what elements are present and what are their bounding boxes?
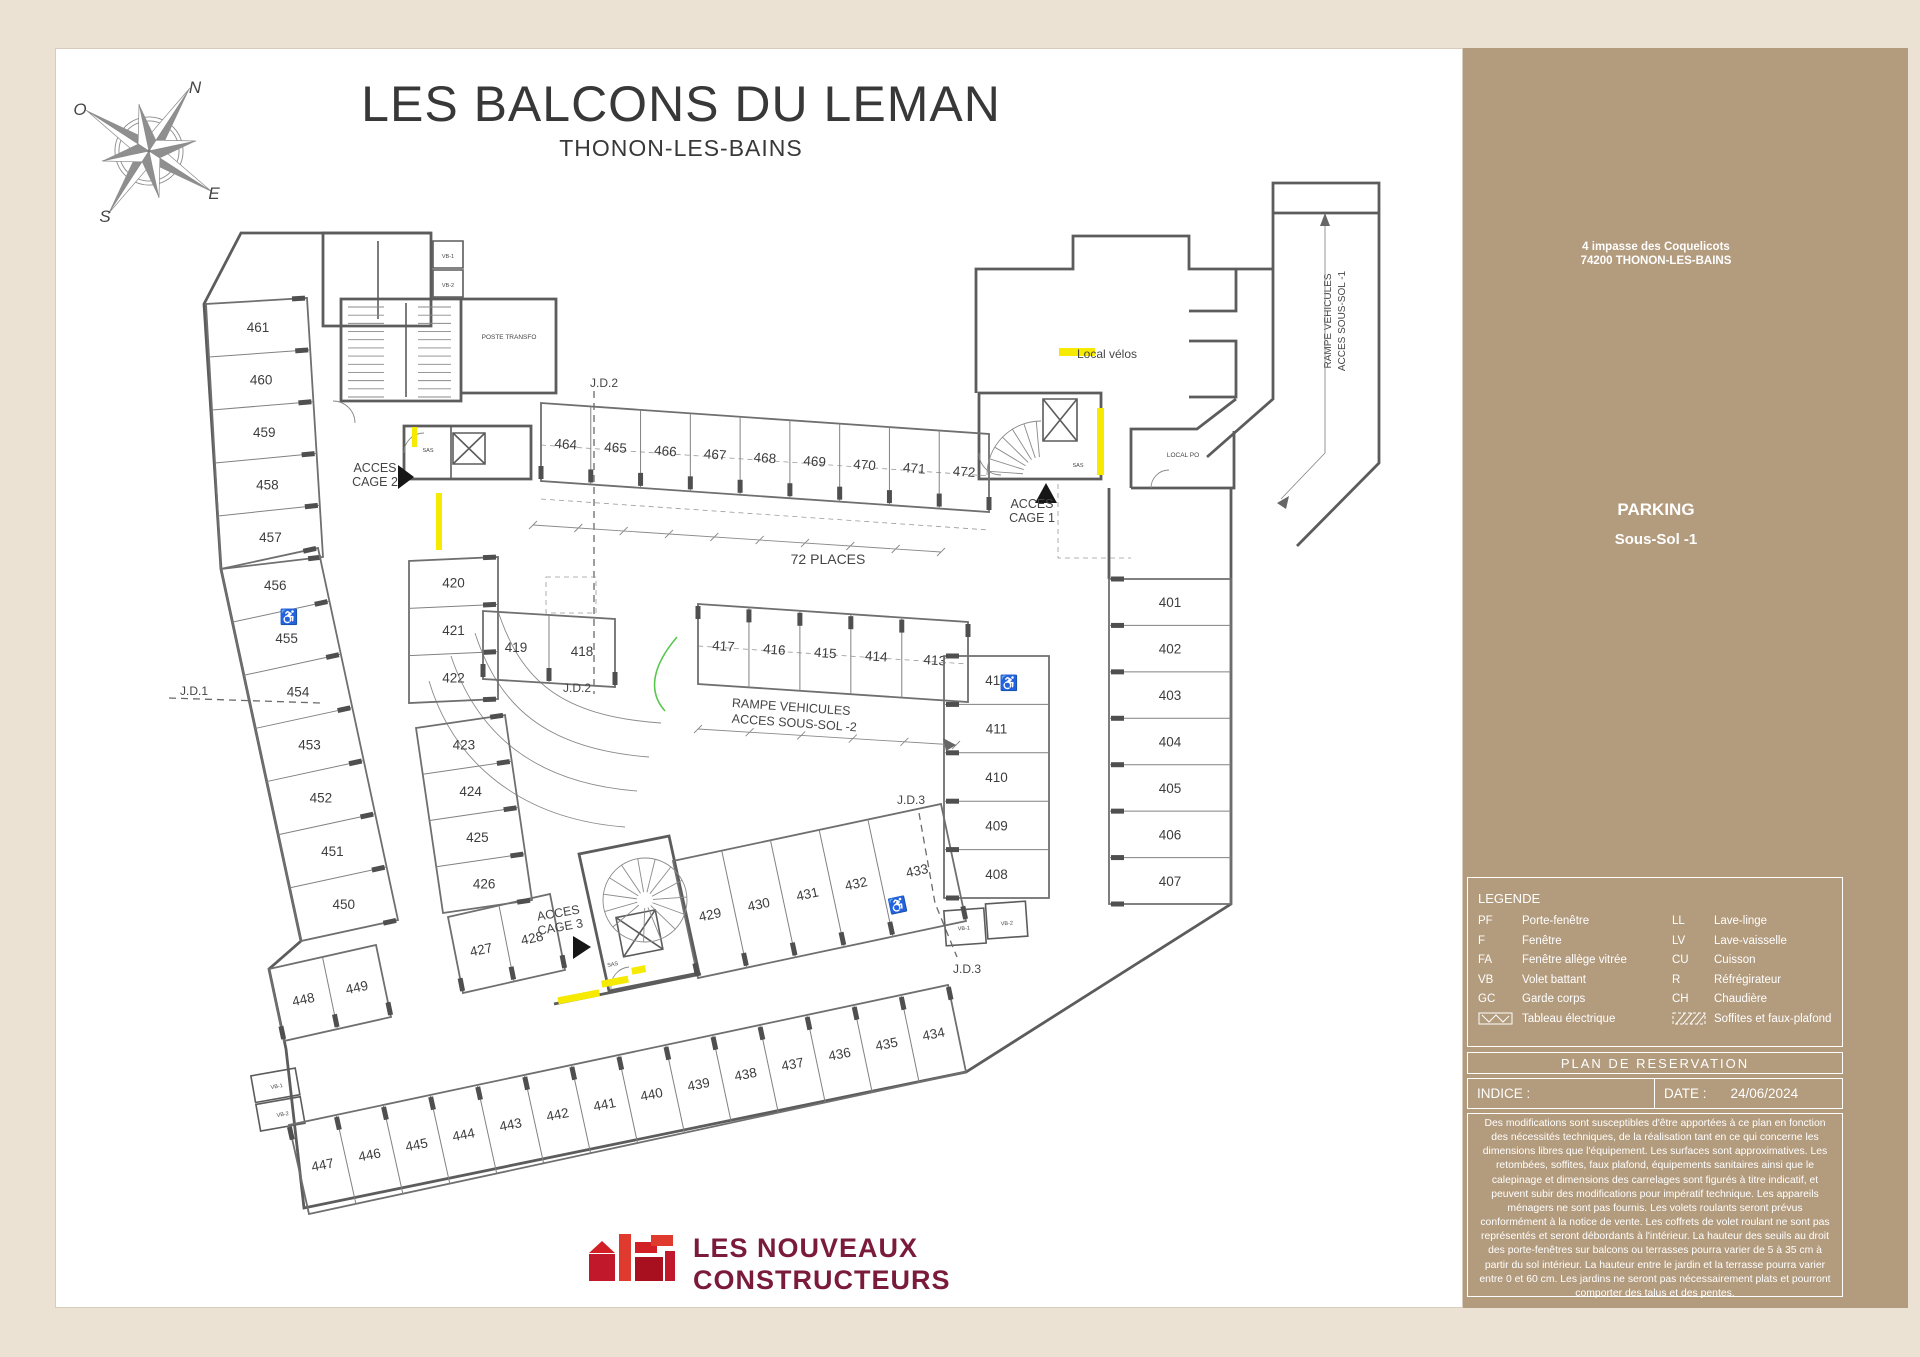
parking-space-420: 420 — [442, 576, 465, 591]
door-jamb — [292, 298, 305, 299]
door-jamb — [666, 1047, 669, 1060]
parking-space-464: 464 — [554, 436, 578, 453]
stall-divider — [868, 820, 893, 937]
door-jamb — [281, 1026, 284, 1039]
plan-label: ♿ — [280, 608, 299, 626]
address-line1: 4 impasse des Coquelicots — [1467, 240, 1845, 254]
plan-label: ♿ — [1000, 674, 1019, 692]
plan-sheet: LES BALCONS DU LEMAN THONON-LES-BAINS — [55, 48, 1463, 1308]
plan-label: ACCES — [353, 461, 396, 475]
parking-space-414: 414 — [865, 648, 889, 665]
parking-space-415: 415 — [814, 645, 838, 662]
info-panel: 4 impasse des Coquelicots 74200 THONON-L… — [1463, 48, 1908, 1308]
parking-space-408: 408 — [985, 867, 1008, 882]
logo-text-line1: LES NOUVEAUX — [693, 1233, 918, 1263]
legend-label: Fenêtre allège vitrée — [1522, 951, 1672, 971]
parking-space-467: 467 — [703, 446, 727, 463]
door-jamb — [383, 920, 396, 923]
door-jamb — [302, 454, 315, 455]
parking-space-448: 448 — [291, 990, 316, 1009]
plan-label: VB-2 — [442, 283, 454, 289]
stall-divider — [215, 453, 317, 463]
door-jamb — [431, 1097, 434, 1110]
parking-space-433: 433 — [904, 861, 929, 880]
parking-space-447: 447 — [310, 1155, 335, 1174]
door-jamb — [334, 1014, 337, 1027]
parking-space-402: 402 — [1159, 642, 1182, 657]
door-jamb — [511, 967, 514, 980]
door-jamb — [901, 997, 904, 1010]
door-jamb — [478, 1087, 481, 1100]
parking-space-454: 454 — [287, 684, 310, 699]
door-jamb — [303, 548, 316, 551]
door-jamb — [338, 708, 351, 711]
door-jamb — [326, 655, 339, 658]
plan-label: VB-2 — [276, 1111, 289, 1119]
acces-cage3-arrow-icon — [573, 936, 591, 959]
parking-space-453: 453 — [298, 738, 321, 753]
parking-space-413: 413 — [923, 652, 947, 669]
date-value: 24/06/2024 — [1731, 1079, 1799, 1108]
plan-label: VB-1 — [270, 1083, 283, 1091]
door-jamb — [298, 402, 311, 403]
legend-code: FA — [1478, 951, 1522, 971]
legend-title: LEGENDE — [1478, 891, 1842, 906]
parking-space-410: 410 — [985, 770, 1008, 785]
parking-space-403: 403 — [1159, 688, 1182, 703]
logo-text-line2: CONSTRUCTEURS — [693, 1265, 951, 1295]
parking-space-425: 425 — [466, 830, 489, 845]
parking-band-bottom — [289, 985, 966, 1214]
legend-label: Cuisson — [1714, 951, 1842, 971]
door-jamb — [760, 1027, 763, 1040]
legend-label: Soffites et faux-plafond — [1714, 1010, 1842, 1030]
legend-label: Garde corps — [1522, 990, 1672, 1010]
door-jamb — [305, 505, 318, 506]
plan-label: CAGE 1 — [1009, 511, 1055, 525]
plan-label: VB-1 — [958, 926, 971, 933]
door-jamb — [349, 761, 362, 764]
door-jamb — [695, 963, 698, 976]
floor-plan: LES NOUVEAUX CONSTRUCTEURS 4614604594584… — [56, 49, 1464, 1309]
parking-space-406: 406 — [1159, 827, 1182, 842]
legend-code: CH — [1672, 990, 1714, 1010]
plan-label: VB-1 — [442, 254, 454, 260]
plan-label: J.D.1 — [180, 684, 208, 698]
project-address: 4 impasse des Coquelicots 74200 THONON-L… — [1467, 240, 1845, 268]
parking-space-452: 452 — [310, 791, 333, 806]
page: LES BALCONS DU LEMAN THONON-LES-BAINS — [0, 0, 1920, 1357]
parking-space-437: 437 — [780, 1055, 805, 1074]
legend-label: Porte-fenêtre — [1522, 912, 1672, 932]
plan-label: POSTE TRANSFO — [482, 334, 537, 341]
legend-code: LV — [1672, 932, 1714, 952]
indice-label: INDICE : — [1468, 1079, 1655, 1108]
parking-space-434: 434 — [921, 1024, 946, 1043]
parking-space-416: 416 — [763, 641, 787, 658]
door-jamb — [483, 604, 496, 605]
parking-space-430: 430 — [746, 895, 771, 914]
door-jamb — [315, 602, 328, 605]
parking-space-443: 443 — [498, 1115, 523, 1134]
legend-grid: PF Porte-fenêtre LL Lave-linge F Fenêtre… — [1478, 912, 1842, 1030]
legend-code: CU — [1672, 951, 1714, 971]
plan-label: SAS — [422, 448, 433, 454]
stall-divider — [722, 851, 747, 968]
legend-code: R — [1672, 971, 1714, 991]
parking-space-439: 439 — [686, 1075, 711, 1094]
plan-label: CAGE 2 — [352, 475, 398, 489]
door-jamb — [744, 953, 747, 966]
parking-space-431: 431 — [795, 884, 820, 903]
indice-date-row: INDICE : DATE : 24/06/2024 — [1467, 1078, 1843, 1109]
parking-space-417: 417 — [712, 638, 736, 655]
door-jamb — [504, 808, 517, 810]
parking-space-441: 441 — [592, 1095, 617, 1114]
stall-divider — [209, 350, 310, 357]
door-jamb — [483, 699, 496, 700]
parking-space-427: 427 — [469, 940, 494, 959]
plan-label: ACCES — [1010, 497, 1053, 511]
acces-cage2-arrow-icon — [398, 465, 414, 489]
door-jamb — [572, 1067, 575, 1080]
parking-space-424: 424 — [459, 784, 482, 799]
legend-code: F — [1478, 932, 1522, 952]
parking-space-472: 472 — [952, 464, 976, 481]
date-cell: DATE : 24/06/2024 — [1655, 1079, 1842, 1108]
parking-space-407: 407 — [1159, 874, 1182, 889]
legend-label: Chaudière — [1714, 990, 1842, 1010]
parking-space-458: 458 — [256, 477, 279, 492]
door-jamb — [510, 854, 523, 856]
parking-space-471: 471 — [903, 460, 927, 477]
parking-space-432: 432 — [844, 874, 869, 893]
plan-label: J.D.2 — [563, 681, 591, 695]
parking-space-435: 435 — [874, 1035, 899, 1054]
compass-rose-icon — [56, 49, 253, 255]
door-jamb — [295, 350, 308, 351]
door-jamb — [517, 900, 530, 902]
floor-title: PARKING — [1467, 500, 1845, 520]
door-jamb — [562, 955, 565, 968]
parking-space-468: 468 — [753, 450, 777, 467]
plan-label: J.D.3 — [897, 793, 925, 807]
soffites-icon — [1672, 1010, 1714, 1030]
tableau-electrique-icon — [1478, 1010, 1522, 1030]
door-jamb — [490, 715, 503, 717]
legend-label: Volet battant — [1522, 971, 1672, 991]
door-jamb — [963, 906, 966, 919]
parking-space-421: 421 — [442, 623, 465, 638]
legend-label: Réfrégirateur — [1714, 971, 1842, 991]
parking-space-445: 445 — [404, 1135, 429, 1154]
parking-space-451: 451 — [321, 844, 344, 859]
parking-space-409: 409 — [985, 818, 1008, 833]
plan-label: Local vélos — [1077, 347, 1137, 361]
parking-space-446: 446 — [357, 1145, 382, 1164]
plan-label: SAS — [607, 961, 619, 969]
door-jamb — [372, 867, 385, 870]
door-jamb — [841, 932, 844, 945]
parking-space-419: 419 — [505, 640, 528, 655]
parking-space-429: 429 — [697, 905, 722, 924]
parking-space-401: 401 — [1159, 595, 1182, 610]
parking-space-423: 423 — [453, 738, 476, 753]
door-jamb — [525, 1077, 528, 1090]
door-jamb — [497, 762, 510, 764]
parking-space-405: 405 — [1159, 781, 1182, 796]
parking-space-440: 440 — [639, 1085, 664, 1104]
door-jamb — [890, 922, 893, 935]
door-jamb — [360, 814, 373, 817]
parking-space-444: 444 — [451, 1125, 476, 1144]
disclaimer-text: Des modifications sont susceptibles d'êt… — [1467, 1113, 1843, 1297]
plan-label: ACCES SOUS-SOL -1 — [1337, 270, 1348, 371]
door-jamb — [337, 1117, 340, 1130]
parking-space-459: 459 — [253, 425, 276, 440]
door-jamb — [948, 987, 951, 1000]
parking-space-461: 461 — [247, 320, 270, 335]
stall-divider — [212, 402, 313, 410]
parking-space-465: 465 — [604, 439, 628, 456]
door-jamb — [854, 1007, 857, 1020]
door-jamb — [619, 1057, 622, 1070]
stall-divider — [770, 840, 795, 957]
parking-space-438: 438 — [733, 1065, 758, 1084]
door-jamb — [807, 1017, 810, 1030]
parking-space-455: 455 — [275, 631, 298, 646]
legend-code: PF — [1478, 912, 1522, 932]
parking-space-457: 457 — [259, 530, 282, 545]
plan-label: LOCAL PO — [1167, 452, 1199, 459]
plan-label: O — [73, 100, 86, 119]
parking-space-422: 422 — [442, 670, 465, 685]
parking-space-470: 470 — [853, 457, 877, 474]
parking-space-442: 442 — [545, 1105, 570, 1124]
walls — [204, 183, 1379, 1208]
parking-space-450: 450 — [333, 897, 356, 912]
door-jamb — [483, 557, 496, 558]
door-jamb — [384, 1107, 387, 1120]
door-jamb — [460, 978, 463, 991]
door-jamb — [388, 1002, 391, 1015]
parking-space-469: 469 — [803, 453, 827, 470]
plan-label: E — [208, 184, 220, 203]
address-line2: 74200 THONON-LES-BAINS — [1467, 254, 1845, 268]
parking-space-426: 426 — [473, 876, 496, 891]
parking-space-418: 418 — [571, 644, 594, 659]
plan-label: 72 PLACES — [791, 551, 866, 567]
door-jamb — [483, 652, 496, 653]
legend-label: Fenêtre — [1522, 932, 1672, 952]
plan-label: J.D.2 — [590, 376, 618, 390]
plan-label: N — [189, 78, 202, 97]
parking-space-436: 436 — [827, 1045, 852, 1064]
parking-space-466: 466 — [654, 443, 678, 460]
stall-divider — [819, 830, 844, 947]
legend-code: LL — [1672, 912, 1714, 932]
door-jamb — [713, 1037, 716, 1050]
plan-label: S — [99, 207, 111, 226]
legend-code: VB — [1478, 971, 1522, 991]
door-jamb — [289, 1127, 292, 1140]
plan-label: SAS — [1072, 463, 1083, 469]
door-jamb — [308, 557, 321, 559]
door-jamb — [792, 943, 795, 956]
legend-label: Lave-linge — [1714, 912, 1842, 932]
floor-label: PARKING Sous-Sol -1 — [1467, 500, 1845, 548]
legend-label: Tableau électrique — [1522, 1010, 1672, 1030]
parking-space-449: 449 — [344, 978, 369, 997]
parking-space-456: 456 — [264, 578, 287, 593]
legend-code: GC — [1478, 990, 1522, 1010]
logo-icon — [589, 1234, 675, 1281]
legend-label: Lave-vaisselle — [1714, 932, 1842, 952]
plan-label: VB-2 — [1001, 921, 1014, 928]
legend-box: LEGENDE PF Porte-fenêtre LL Lave-linge F… — [1467, 877, 1843, 1047]
stall-divider — [218, 505, 320, 516]
plan-label: J.D.3 — [953, 962, 981, 976]
date-label: DATE : — [1664, 1079, 1707, 1108]
plan-label: ♿ — [887, 894, 909, 915]
parking-space-404: 404 — [1159, 735, 1182, 750]
parking-space-460: 460 — [250, 373, 273, 388]
floor-subtitle: Sous-Sol -1 — [1467, 531, 1845, 548]
parking-space-411: 411 — [986, 722, 1008, 737]
plan-reservation-title: PLAN DE RESERVATION — [1467, 1052, 1843, 1074]
